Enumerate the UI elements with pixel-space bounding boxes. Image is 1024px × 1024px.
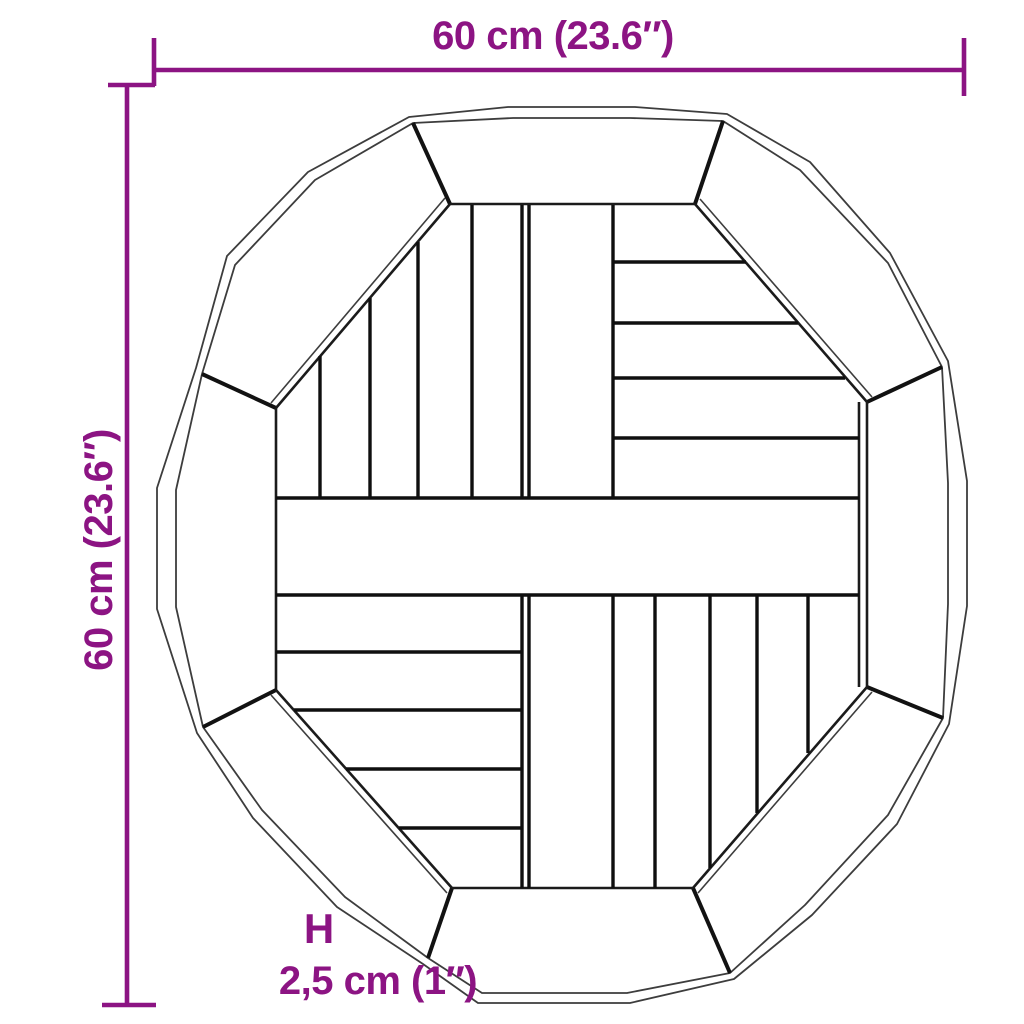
octagon-diagonal-top-right xyxy=(695,204,867,402)
rim-outline xyxy=(157,107,967,1003)
octagon-diagonal-bottom-right xyxy=(693,687,867,888)
product-dimension-diagram: 60 cm (23.6″) 60 cm (23.6″) H 2,5 cm (1″… xyxy=(0,0,1024,1024)
rim-divider xyxy=(693,888,730,973)
octagon-diagonal-bottom-left-offset xyxy=(271,695,447,893)
rim-divider xyxy=(428,888,452,958)
octagon-diagonal-top-right-offset xyxy=(700,199,872,397)
rim-segment-dividers xyxy=(202,121,943,973)
rim-divider xyxy=(695,121,723,204)
rim-divider xyxy=(202,374,276,408)
thickness-dimension-label: 2,5 cm (1″) xyxy=(279,961,477,1001)
rim-divider xyxy=(413,123,450,204)
dimension-lines xyxy=(102,38,964,1005)
rim-divider xyxy=(867,367,942,402)
thickness-symbol-label: H xyxy=(304,908,334,950)
octagon-diagonal-bottom-right-offset xyxy=(698,692,872,893)
outer-rim-outline xyxy=(157,107,967,1003)
inner-rim-outline xyxy=(176,118,948,993)
rim-divider xyxy=(203,690,276,727)
inner-octagon xyxy=(271,198,872,893)
octagon-diagonal-top-left xyxy=(276,204,450,408)
width-dimension-label: 60 cm (23.6″) xyxy=(432,16,674,56)
octagon-diagonal-bottom-left xyxy=(276,690,452,888)
height-dimension-label: 60 cm (23.6″) xyxy=(79,429,119,671)
tabletop-line-drawing xyxy=(0,0,1024,1024)
rim-divider xyxy=(867,687,943,718)
